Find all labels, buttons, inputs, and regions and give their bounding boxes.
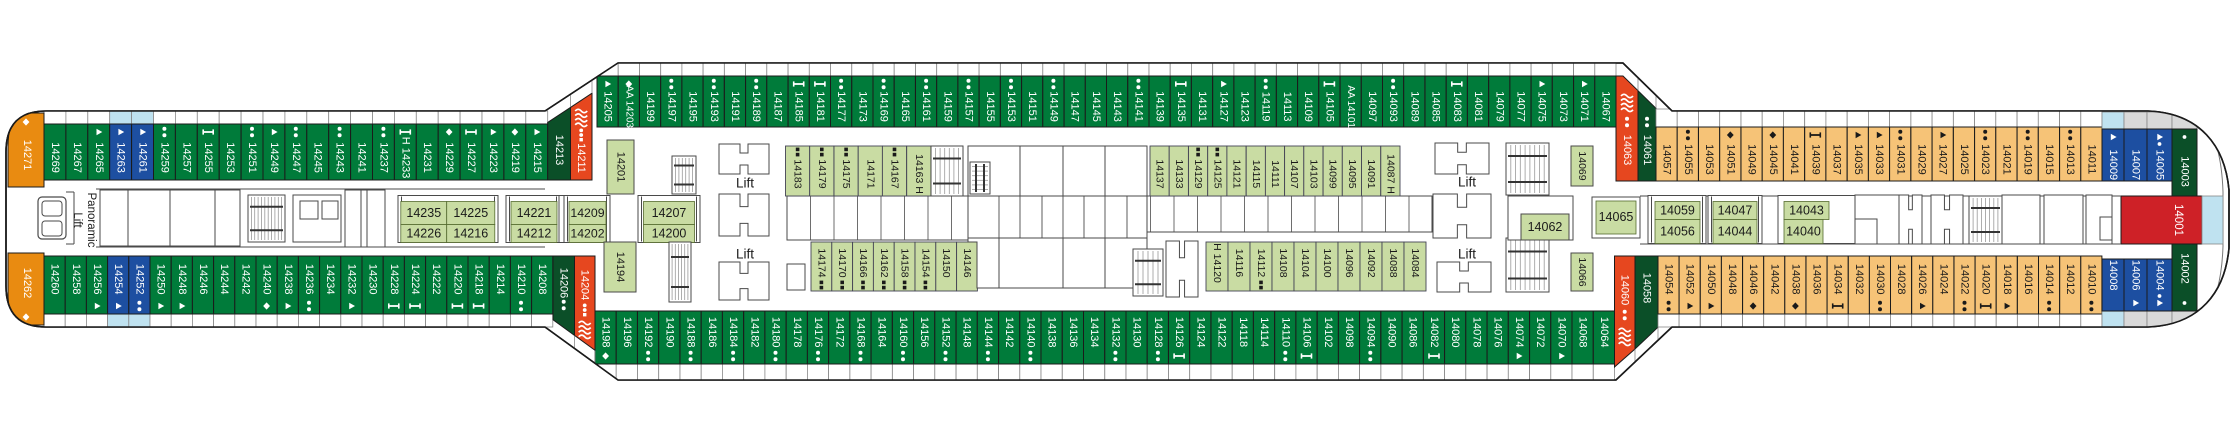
- svg-text:14205: 14205: [602, 91, 614, 122]
- svg-text:14094: 14094: [1364, 317, 1376, 348]
- svg-text:14058: 14058: [1641, 273, 1653, 304]
- svg-text:14007: 14007: [2130, 150, 2142, 181]
- svg-text:14037: 14037: [1831, 144, 1843, 175]
- svg-text:14186: 14186: [706, 317, 718, 348]
- svg-text:14115: 14115: [1250, 160, 1262, 189]
- svg-text:14141: 14141: [1132, 91, 1144, 122]
- svg-text:14033: 14033: [1873, 144, 1885, 175]
- svg-text:14106: 14106: [1301, 317, 1313, 348]
- svg-text:14140: 14140: [1024, 317, 1036, 348]
- svg-text:14011: 14011: [2085, 145, 2097, 175]
- svg-text:14252: 14252: [133, 264, 145, 295]
- svg-text:14123: 14123: [1239, 91, 1251, 122]
- svg-text:14260: 14260: [49, 264, 61, 295]
- svg-text:14250: 14250: [155, 264, 167, 295]
- svg-text:14020: 14020: [1980, 264, 1992, 295]
- svg-text:14052: 14052: [1684, 264, 1696, 295]
- svg-text:14224: 14224: [409, 264, 421, 295]
- svg-text:14195: 14195: [687, 91, 699, 122]
- svg-text:14139: 14139: [1154, 91, 1166, 122]
- svg-text:14232: 14232: [345, 264, 357, 295]
- svg-text:14196: 14196: [621, 317, 633, 348]
- svg-text:14126: 14126: [1173, 317, 1185, 348]
- svg-text:14265: 14265: [93, 142, 105, 173]
- svg-text:14249: 14249: [268, 142, 280, 173]
- svg-text:14012: 14012: [2064, 264, 2076, 295]
- svg-text:14149: 14149: [1047, 91, 1059, 122]
- svg-text:14097: 14097: [1366, 91, 1378, 122]
- svg-text:14100: 14100: [1321, 248, 1333, 277]
- svg-text:14087 H: 14087 H: [1384, 154, 1396, 194]
- svg-text:14015: 14015: [2043, 144, 2055, 175]
- svg-text:14221: 14221: [517, 206, 552, 220]
- svg-text:14083: 14083: [1451, 91, 1463, 122]
- svg-text:14035: 14035: [1852, 144, 1864, 175]
- svg-text:14108: 14108: [1277, 248, 1289, 277]
- svg-text:14096: 14096: [1343, 248, 1355, 277]
- svg-text:14176: 14176: [812, 317, 824, 348]
- svg-text:14072: 14072: [1534, 317, 1546, 348]
- svg-text:14230: 14230: [367, 264, 379, 295]
- svg-text:14188: 14188: [685, 317, 697, 348]
- svg-text:14128: 14128: [1152, 317, 1164, 348]
- svg-text:14251: 14251: [246, 142, 258, 173]
- svg-text:14081: 14081: [1472, 91, 1484, 122]
- svg-text:14243: 14243: [334, 142, 346, 173]
- svg-text:14073: 14073: [1557, 91, 1569, 122]
- svg-text:14155: 14155: [984, 91, 996, 122]
- svg-text:14061: 14061: [1641, 135, 1653, 166]
- svg-text:H 14233: H 14233: [399, 137, 411, 179]
- svg-text:14068: 14068: [1577, 317, 1589, 348]
- svg-text:14023: 14023: [1979, 144, 1991, 175]
- svg-text:14269: 14269: [49, 142, 61, 173]
- svg-text:14032: 14032: [1853, 264, 1865, 295]
- svg-text:14181: 14181: [814, 91, 826, 122]
- svg-text:14131: 14131: [1196, 91, 1208, 122]
- svg-text:14153: 14153: [1005, 91, 1017, 122]
- svg-text:14219: 14219: [509, 142, 521, 173]
- svg-text:14004: 14004: [2154, 260, 2166, 291]
- svg-text:14124: 14124: [1194, 317, 1206, 348]
- svg-text:14194: 14194: [614, 252, 626, 283]
- svg-text:14236: 14236: [303, 264, 315, 295]
- svg-text:14157: 14157: [963, 91, 975, 122]
- svg-text:14212: 14212: [517, 227, 552, 241]
- svg-text:14198: 14198: [600, 317, 612, 348]
- svg-text:14150: 14150: [940, 248, 952, 277]
- svg-text:Lift: Lift: [1458, 175, 1476, 190]
- svg-text:14234: 14234: [324, 264, 336, 295]
- svg-text:14164: 14164: [876, 317, 888, 348]
- svg-text:14160: 14160: [897, 317, 909, 348]
- svg-text:14009: 14009: [2107, 150, 2119, 181]
- svg-text:14029: 14029: [1916, 144, 1928, 175]
- svg-text:14216: 14216: [453, 227, 488, 241]
- svg-text:14202: 14202: [570, 227, 604, 241]
- svg-text:14095: 14095: [1346, 159, 1358, 188]
- svg-text:14049: 14049: [1746, 144, 1758, 175]
- svg-text:14001: 14001: [2172, 204, 2184, 236]
- svg-text:14080: 14080: [1449, 317, 1461, 348]
- svg-text:14079: 14079: [1493, 91, 1505, 122]
- svg-text:14254: 14254: [112, 264, 124, 295]
- svg-text:14214: 14214: [494, 264, 506, 295]
- svg-text:14178: 14178: [791, 317, 803, 348]
- svg-text:14024: 14024: [1937, 264, 1949, 295]
- svg-text:14133: 14133: [1173, 159, 1185, 188]
- svg-text:Panoramic: Panoramic: [85, 193, 97, 248]
- svg-text:14132: 14132: [1109, 317, 1121, 348]
- svg-text:14174: 14174: [815, 248, 827, 277]
- svg-text:14025: 14025: [1958, 144, 1970, 175]
- svg-text:14223: 14223: [487, 142, 499, 173]
- svg-text:14107: 14107: [1288, 159, 1300, 188]
- svg-text:14245: 14245: [312, 142, 324, 173]
- svg-text:14193: 14193: [708, 91, 720, 122]
- svg-text:14065: 14065: [1599, 210, 1634, 224]
- svg-text:14256: 14256: [91, 264, 103, 295]
- svg-text:14092: 14092: [1365, 248, 1377, 277]
- svg-text:14055: 14055: [1682, 144, 1694, 175]
- svg-text:14172: 14172: [833, 317, 845, 348]
- svg-text:14180: 14180: [770, 317, 782, 348]
- svg-text:14146: 14146: [961, 248, 973, 277]
- svg-text:14002: 14002: [2179, 253, 2191, 284]
- svg-text:14235: 14235: [406, 206, 441, 220]
- svg-text:14183: 14183: [792, 159, 804, 188]
- svg-text:14244: 14244: [218, 264, 230, 295]
- svg-text:14050: 14050: [1705, 264, 1717, 295]
- svg-text:14091: 14091: [1365, 159, 1377, 188]
- svg-text:14201: 14201: [615, 152, 627, 183]
- svg-text:14134: 14134: [1088, 317, 1100, 348]
- svg-text:14152: 14152: [940, 317, 952, 348]
- svg-text:14041: 14041: [1788, 144, 1800, 175]
- svg-text:14158: 14158: [899, 248, 911, 277]
- svg-text:14089: 14089: [1408, 91, 1420, 122]
- svg-text:14257: 14257: [180, 142, 192, 173]
- svg-text:14192: 14192: [642, 317, 654, 348]
- svg-text:14093: 14093: [1387, 91, 1399, 122]
- svg-text:14228: 14228: [388, 264, 400, 295]
- svg-text:14229: 14229: [443, 142, 455, 173]
- svg-text:14189: 14189: [750, 91, 762, 122]
- svg-text:14039: 14039: [1809, 144, 1821, 175]
- svg-text:14162: 14162: [878, 248, 890, 277]
- svg-text:14226: 14226: [406, 227, 441, 241]
- svg-text:14177: 14177: [835, 91, 847, 122]
- svg-text:14179: 14179: [816, 159, 828, 188]
- svg-text:14104: 14104: [1299, 248, 1311, 277]
- svg-text:AA 14101: AA 14101: [1345, 85, 1356, 128]
- svg-text:H 14120: H 14120: [1211, 243, 1223, 283]
- svg-text:14246: 14246: [197, 264, 209, 295]
- svg-text:14159: 14159: [941, 91, 953, 122]
- svg-text:14145: 14145: [1090, 91, 1102, 122]
- svg-text:14127: 14127: [1217, 91, 1229, 122]
- svg-text:14059: 14059: [1660, 204, 1695, 218]
- svg-text:14086: 14086: [1407, 317, 1419, 348]
- svg-text:14102: 14102: [1322, 317, 1334, 348]
- svg-text:14167: 14167: [889, 159, 901, 188]
- svg-text:14030: 14030: [1874, 264, 1886, 295]
- svg-text:14165: 14165: [899, 91, 911, 122]
- svg-text:14208: 14208: [536, 264, 548, 295]
- svg-text:14047: 14047: [1718, 204, 1753, 218]
- svg-text:14170: 14170: [836, 248, 848, 277]
- svg-text:14051: 14051: [1724, 144, 1736, 175]
- svg-text:14199: 14199: [644, 91, 656, 122]
- svg-text:14215: 14215: [531, 142, 543, 173]
- svg-text:14045: 14045: [1767, 144, 1779, 175]
- svg-text:14258: 14258: [70, 264, 82, 295]
- svg-text:14171: 14171: [864, 159, 876, 188]
- svg-text:14138: 14138: [1046, 317, 1058, 348]
- svg-text:14130: 14130: [1131, 317, 1143, 348]
- svg-text:14008: 14008: [2107, 260, 2119, 291]
- svg-text:14076: 14076: [1492, 317, 1504, 348]
- svg-text:14154: 14154: [919, 248, 931, 277]
- svg-text:14166: 14166: [857, 248, 869, 277]
- svg-text:14200: 14200: [652, 227, 687, 241]
- svg-text:14135: 14135: [1175, 91, 1187, 122]
- svg-text:14142: 14142: [1003, 317, 1015, 348]
- svg-text:14255: 14255: [202, 142, 214, 173]
- svg-text:14161: 14161: [920, 91, 932, 122]
- svg-text:14248: 14248: [176, 264, 188, 295]
- svg-text:14013: 14013: [2064, 144, 2076, 175]
- svg-text:14070: 14070: [1555, 317, 1567, 348]
- svg-text:14085: 14085: [1430, 91, 1442, 122]
- svg-text:14005: 14005: [2154, 150, 2166, 181]
- svg-text:14062: 14062: [1528, 220, 1563, 234]
- svg-text:14136: 14136: [1067, 317, 1079, 348]
- svg-text:14184: 14184: [727, 317, 739, 348]
- svg-text:AA 14203: AA 14203: [623, 85, 634, 128]
- svg-text:14259: 14259: [158, 142, 170, 173]
- svg-text:14118: 14118: [1237, 317, 1249, 347]
- svg-text:14109: 14109: [1302, 91, 1314, 122]
- svg-text:14103: 14103: [1307, 159, 1319, 188]
- svg-text:14040: 14040: [1786, 225, 1821, 239]
- svg-text:Lift: Lift: [71, 212, 83, 228]
- svg-text:14262: 14262: [21, 268, 33, 299]
- svg-text:14125: 14125: [1211, 159, 1223, 188]
- svg-text:14207: 14207: [652, 206, 687, 220]
- svg-text:14168: 14168: [855, 317, 867, 348]
- svg-text:14021: 14021: [2001, 144, 2013, 175]
- svg-text:14211: 14211: [575, 143, 587, 173]
- svg-text:14034: 14034: [1832, 264, 1844, 295]
- svg-text:14227: 14227: [465, 142, 477, 173]
- svg-text:14028: 14028: [1895, 264, 1907, 295]
- svg-text:14063: 14063: [1621, 135, 1633, 166]
- svg-text:14064: 14064: [1598, 317, 1610, 348]
- svg-text:14067: 14067: [1599, 91, 1611, 122]
- svg-text:14147: 14147: [1069, 91, 1081, 122]
- svg-text:14209: 14209: [570, 206, 604, 220]
- svg-text:14143: 14143: [1111, 91, 1123, 122]
- svg-text:14031: 14031: [1894, 144, 1906, 175]
- svg-text:14206: 14206: [558, 268, 570, 299]
- svg-text:14237: 14237: [377, 142, 389, 173]
- svg-text:14099: 14099: [1327, 159, 1339, 188]
- svg-text:14163 H: 14163 H: [913, 154, 925, 194]
- svg-text:14044: 14044: [1718, 225, 1753, 239]
- svg-text:14238: 14238: [282, 264, 294, 295]
- svg-text:14082: 14082: [1428, 317, 1440, 348]
- svg-text:14022: 14022: [1959, 264, 1971, 295]
- svg-text:14048: 14048: [1726, 264, 1738, 295]
- svg-text:14054: 14054: [1663, 264, 1675, 295]
- svg-text:14242: 14242: [239, 264, 251, 295]
- svg-text:14253: 14253: [224, 142, 236, 173]
- svg-text:14057: 14057: [1661, 144, 1673, 175]
- svg-text:Lift: Lift: [736, 176, 754, 191]
- svg-text:14088: 14088: [1387, 248, 1399, 277]
- svg-text:14121: 14121: [1231, 159, 1243, 188]
- svg-text:14267: 14267: [71, 142, 83, 173]
- svg-text:14137: 14137: [1154, 159, 1166, 188]
- svg-text:14231: 14231: [421, 142, 433, 173]
- svg-text:14220: 14220: [451, 264, 463, 295]
- svg-text:14075: 14075: [1536, 91, 1548, 122]
- svg-text:14197: 14197: [665, 91, 677, 122]
- svg-text:14084: 14084: [1409, 248, 1421, 277]
- svg-text:14018: 14018: [2001, 264, 2013, 295]
- svg-text:14204: 14204: [579, 270, 591, 301]
- svg-text:14213: 14213: [553, 135, 565, 166]
- svg-text:14105: 14105: [1323, 91, 1335, 122]
- svg-text:14019: 14019: [2022, 144, 2034, 175]
- svg-text:14173: 14173: [856, 91, 868, 122]
- svg-text:14111: 14111: [1269, 160, 1281, 188]
- svg-text:14027: 14027: [1937, 144, 1949, 175]
- svg-text:14187: 14187: [772, 91, 784, 122]
- svg-text:14036: 14036: [1811, 264, 1823, 295]
- svg-text:14116: 14116: [1233, 249, 1245, 278]
- svg-text:14190: 14190: [663, 317, 675, 348]
- svg-text:14069: 14069: [1576, 151, 1588, 180]
- svg-text:14026: 14026: [1916, 264, 1928, 295]
- svg-text:14129: 14129: [1192, 159, 1204, 188]
- svg-text:14144: 14144: [982, 317, 994, 348]
- svg-text:14056: 14056: [1660, 225, 1695, 239]
- svg-text:14175: 14175: [840, 159, 852, 188]
- svg-text:14185: 14185: [793, 91, 805, 122]
- svg-text:14114: 14114: [1258, 317, 1270, 347]
- svg-text:14112: 14112: [1255, 249, 1267, 278]
- svg-text:14098: 14098: [1343, 317, 1355, 348]
- svg-text:14191: 14191: [729, 91, 741, 122]
- svg-text:14148: 14148: [961, 317, 973, 348]
- svg-text:14003: 14003: [2179, 156, 2191, 187]
- svg-text:14006: 14006: [2130, 260, 2142, 291]
- svg-text:14014: 14014: [2043, 264, 2055, 295]
- svg-text:14074: 14074: [1513, 317, 1525, 348]
- svg-text:14043: 14043: [1789, 204, 1824, 218]
- svg-text:14261: 14261: [137, 142, 149, 173]
- svg-text:14113: 14113: [1281, 92, 1293, 122]
- svg-text:14016: 14016: [2022, 264, 2034, 295]
- svg-text:14060: 14060: [1619, 275, 1631, 306]
- svg-text:14090: 14090: [1386, 317, 1398, 348]
- svg-text:14222: 14222: [430, 264, 442, 295]
- svg-text:14169: 14169: [878, 91, 890, 122]
- svg-text:14077: 14077: [1515, 91, 1527, 122]
- svg-text:14182: 14182: [748, 317, 760, 348]
- svg-text:Lift: Lift: [1458, 247, 1476, 262]
- svg-text:14119: 14119: [1260, 92, 1272, 122]
- svg-text:14053: 14053: [1703, 144, 1715, 175]
- svg-text:14110: 14110: [1279, 317, 1291, 347]
- svg-text:14046: 14046: [1747, 264, 1759, 295]
- svg-text:14042: 14042: [1768, 264, 1780, 295]
- svg-text:14038: 14038: [1789, 264, 1801, 295]
- svg-text:Lift: Lift: [736, 247, 754, 262]
- svg-text:14010: 14010: [2085, 264, 2097, 295]
- svg-text:14241: 14241: [356, 142, 368, 173]
- svg-text:14078: 14078: [1471, 317, 1483, 348]
- svg-text:14210: 14210: [515, 264, 527, 295]
- svg-text:14151: 14151: [1026, 91, 1038, 122]
- svg-text:14156: 14156: [918, 317, 930, 348]
- svg-text:14225: 14225: [453, 206, 488, 220]
- svg-text:14247: 14247: [290, 142, 302, 173]
- svg-text:14218: 14218: [473, 264, 485, 295]
- svg-text:14122: 14122: [1216, 317, 1228, 348]
- svg-text:14071: 14071: [1578, 91, 1590, 122]
- svg-text:14263: 14263: [115, 142, 127, 173]
- svg-text:14271: 14271: [21, 140, 33, 171]
- svg-text:14066: 14066: [1576, 257, 1588, 286]
- svg-text:14240: 14240: [261, 264, 273, 295]
